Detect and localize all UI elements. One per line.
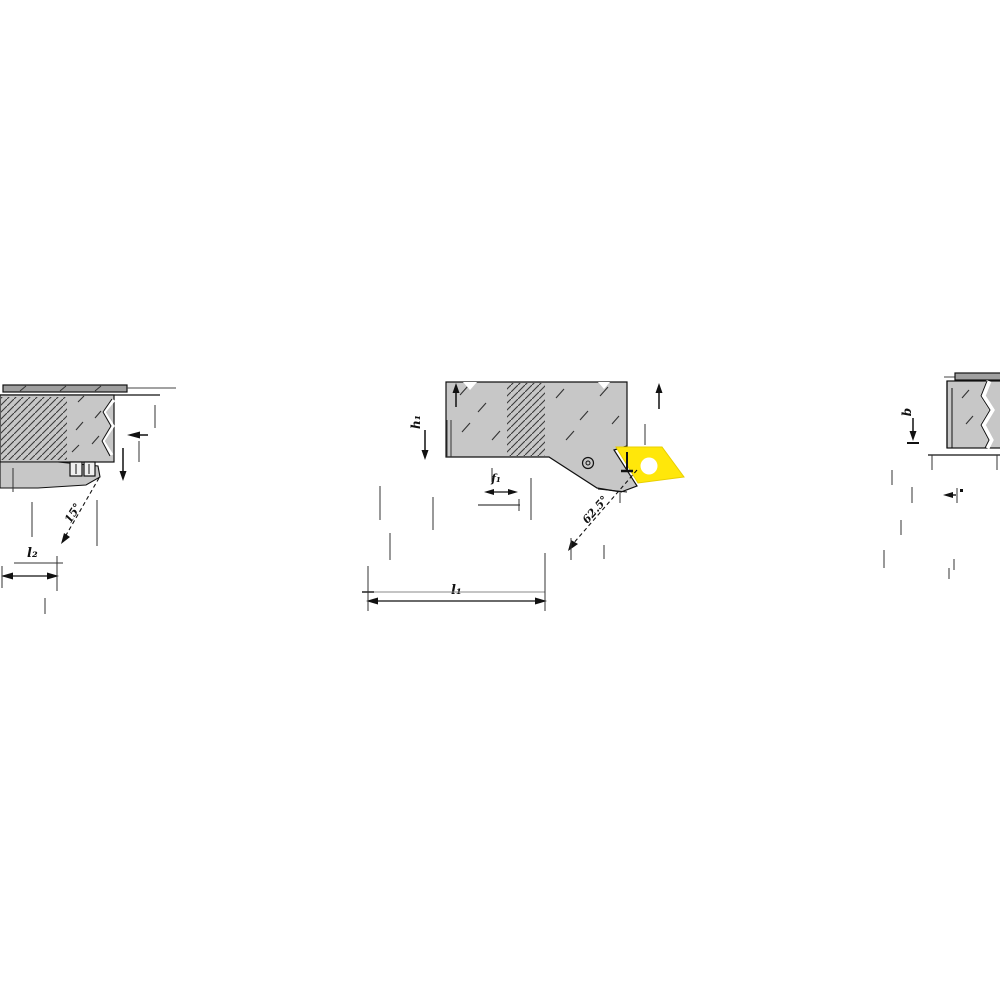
side-angle-label: 62.5°: [580, 493, 611, 526]
angle-arrow: [568, 540, 578, 551]
dim-h1-label: h₁: [409, 415, 423, 429]
insert-hole: [641, 458, 658, 475]
dim-l1-label: l₁: [451, 583, 462, 598]
dim-tick: [960, 489, 963, 492]
clamp-bar: [955, 373, 1000, 380]
top-view: b: [884, 373, 1000, 579]
side-view: h₁ f₁ 62.5° l₁: [362, 382, 684, 611]
dim-l2-label: l₂: [27, 546, 38, 561]
dim-arrow-down: [910, 431, 917, 441]
dim-arrow-down: [422, 450, 429, 460]
dim-arrow-right: [508, 489, 518, 495]
section-hatch: [507, 383, 545, 456]
clamp-bar: [3, 385, 127, 392]
drawing-canvas: 15° l₂ h₁: [0, 0, 1000, 1000]
tool-holder-drawing: 15° l₂ h₁: [0, 0, 1000, 1000]
front-angle-label: 15°: [62, 501, 84, 526]
angle-arrow: [61, 533, 70, 544]
section-hatch: [1, 397, 67, 460]
dim-arrow-left: [127, 432, 140, 439]
dim-arrow-left: [484, 489, 494, 495]
front-view: 15° l₂: [0, 385, 176, 614]
dim-arrow-down: [120, 471, 127, 481]
dim-arrow-left: [943, 492, 953, 498]
insert-screw: [583, 458, 594, 469]
dim-b-label: b: [900, 408, 914, 416]
dim-arrow-left: [1, 573, 13, 580]
dim-arrow-up: [656, 383, 663, 393]
